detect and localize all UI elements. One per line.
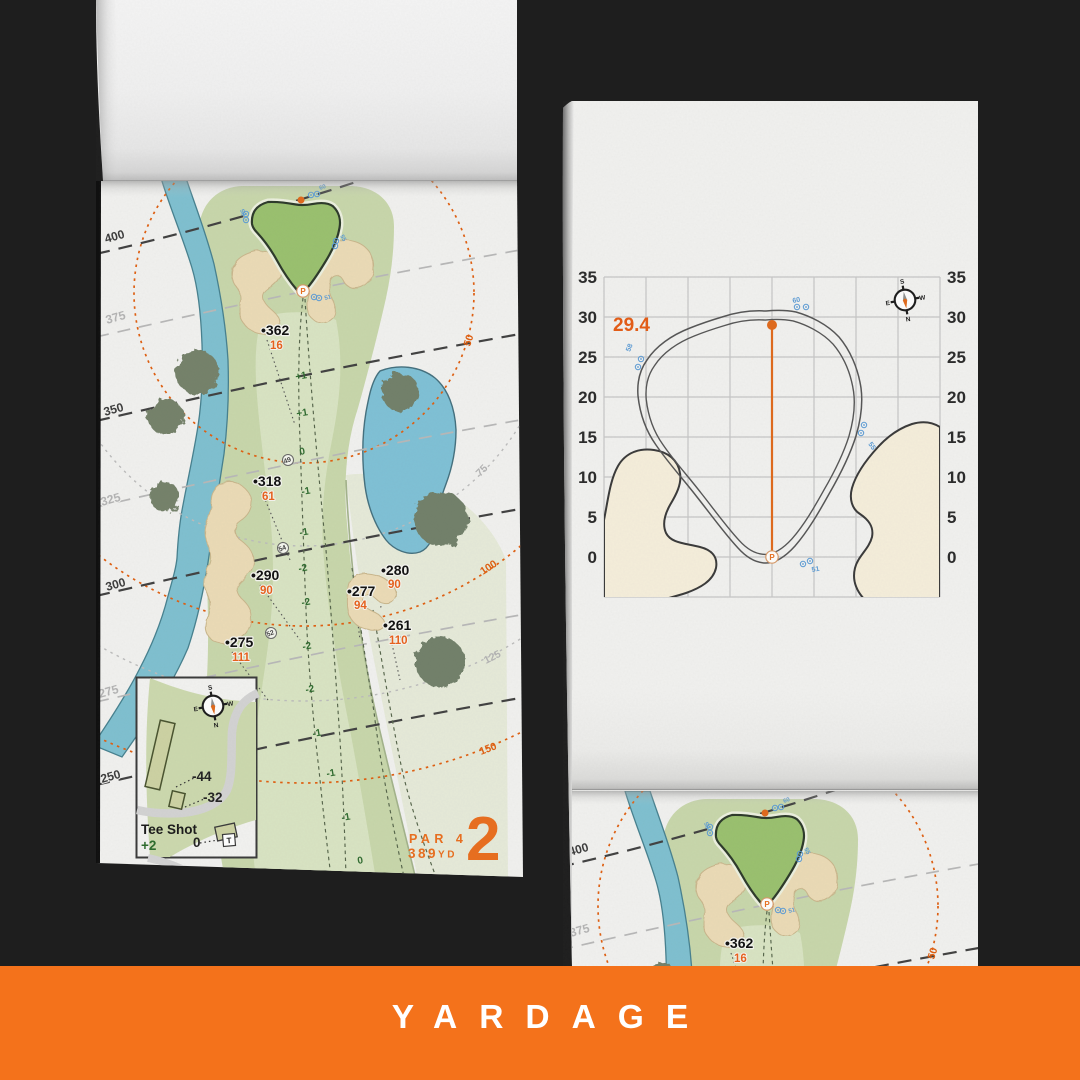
svg-text:YARDAGE: YARDAGE [392, 999, 710, 1036]
